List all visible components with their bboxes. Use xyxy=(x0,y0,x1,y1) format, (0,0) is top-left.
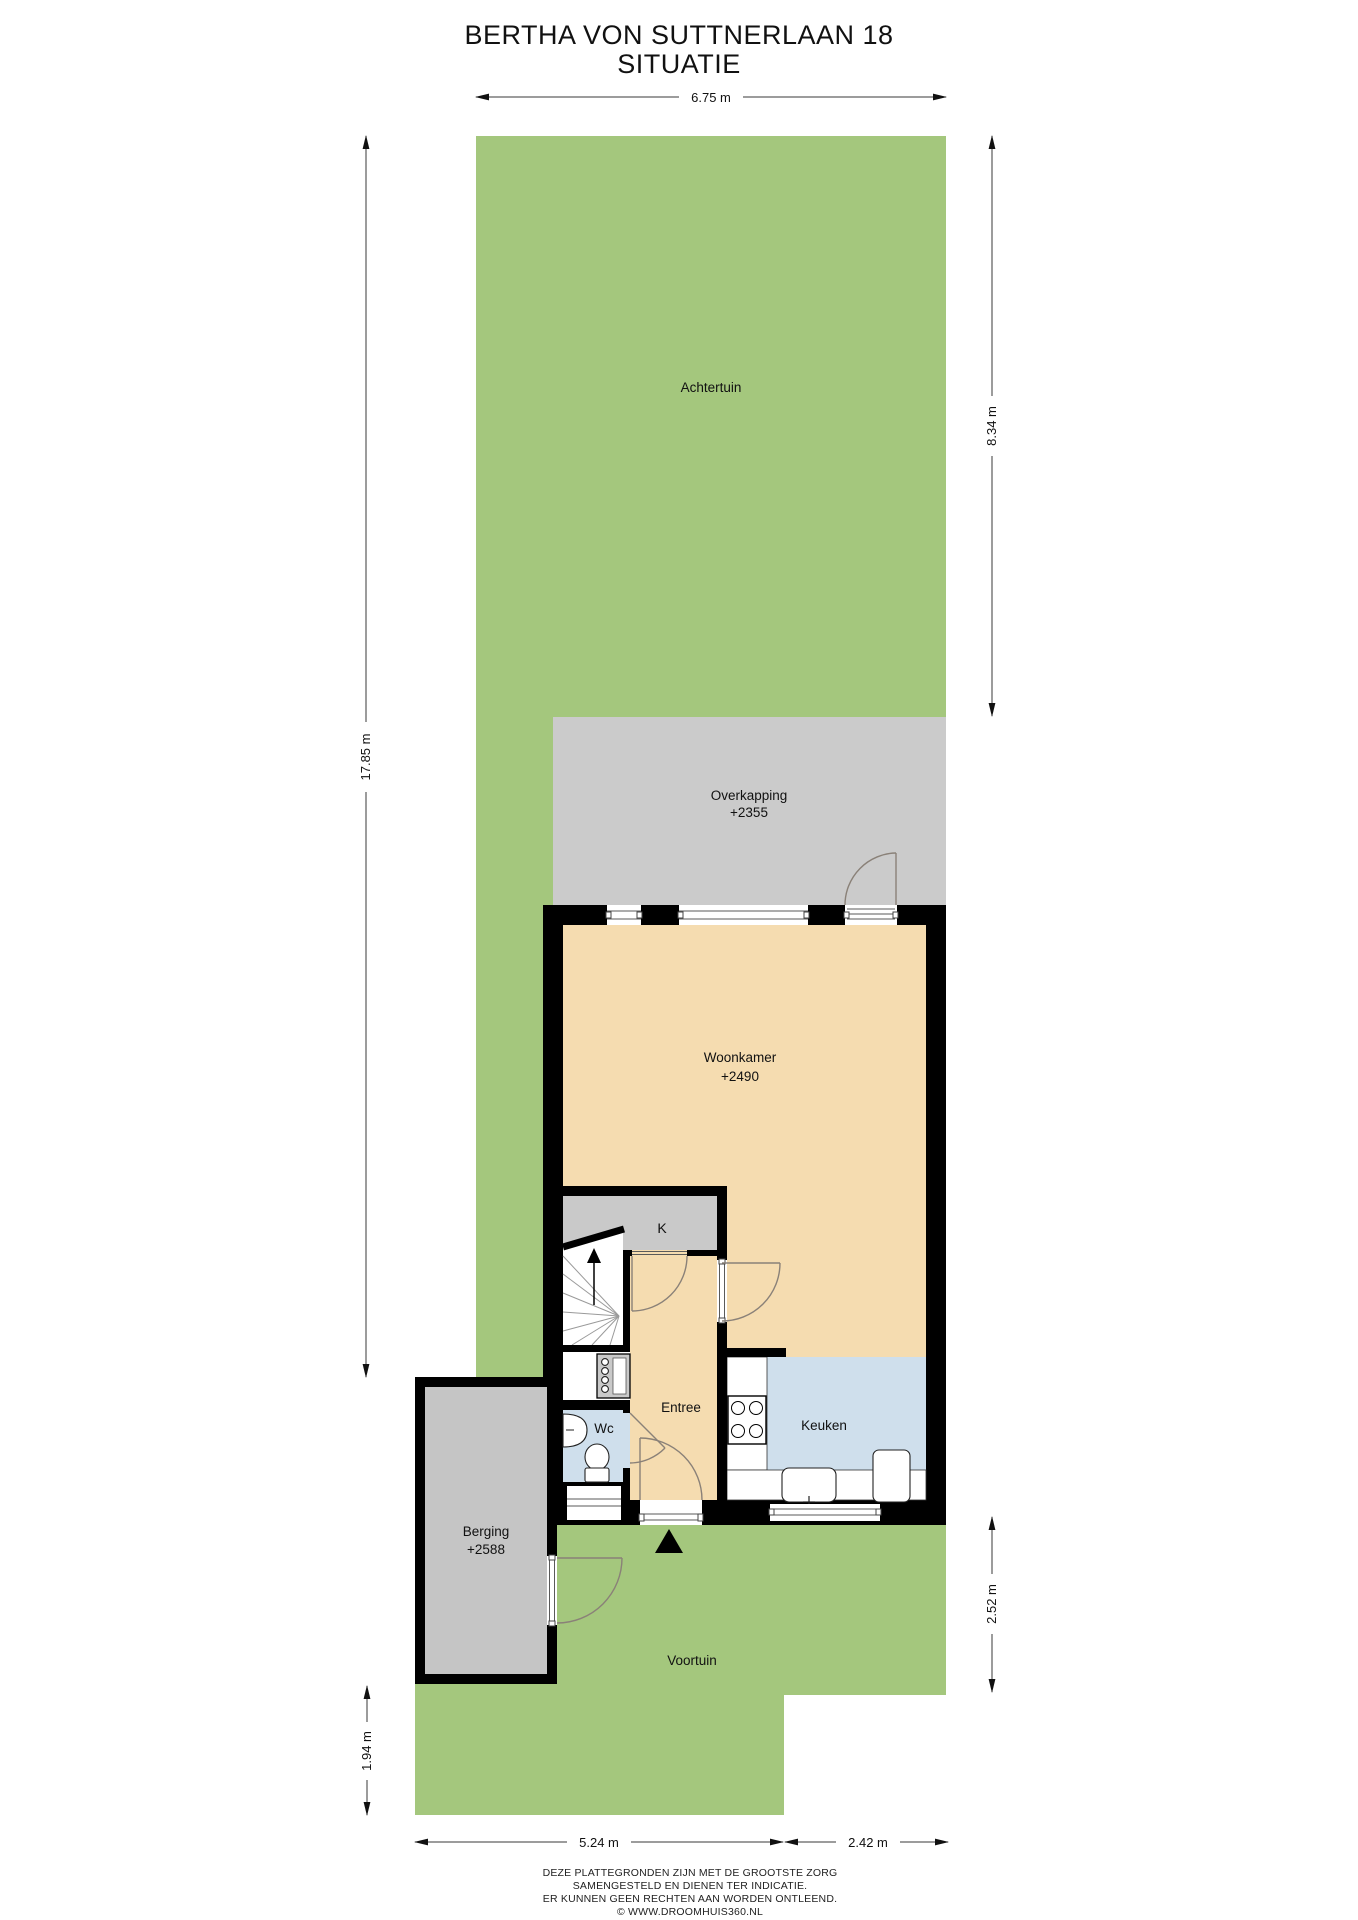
achtertuin-area xyxy=(476,136,946,717)
page-title: BERTHA VON SUTTNERLAAN 18 xyxy=(464,20,893,50)
dimension-bottom-width-left: 5.24 m xyxy=(415,1833,783,1850)
disclaimer-line-3: ER KUNNEN GEEN RECHTEN AAN WORDEN ONTLEE… xyxy=(543,1893,837,1905)
achtertuin-label: Achtertuin xyxy=(681,380,742,395)
dim-bottom-width-left-label: 5.24 m xyxy=(579,1835,619,1850)
dim-bottom-width-right-label: 2.42 m xyxy=(848,1835,888,1850)
dim-right-upper-label: 8.34 m xyxy=(984,406,999,446)
woonkamer-level: +2490 xyxy=(721,1069,759,1084)
dim-top-width-label: 6.75 m xyxy=(691,90,731,105)
kast-label: K xyxy=(657,1220,667,1236)
dim-left-height-label: 17.85 m xyxy=(358,734,373,781)
voortuin-label: Voortuin xyxy=(667,1653,717,1668)
house: Woonkamer +2490 K Entree xyxy=(543,853,946,1525)
garden-strip-left-lower xyxy=(476,905,543,1377)
page-subtitle: SITUATIE xyxy=(617,49,741,79)
disclaimer-line-2: SAMENGESTELD EN DIENEN TER INDICATIE. xyxy=(573,1880,808,1892)
voortuin-area-left xyxy=(415,1684,784,1815)
overkapping-level: +2355 xyxy=(730,805,768,820)
window-back-small xyxy=(606,905,642,925)
disclaimer-line-1: DEZE PLATTEGRONDEN ZIJN MET DE GROOTSTE … xyxy=(543,1867,838,1879)
wc-door-opening xyxy=(623,1413,630,1468)
kitchen-hob xyxy=(728,1396,766,1444)
window-keuken-front xyxy=(769,1504,881,1521)
window-back-large xyxy=(678,905,809,925)
kitchen-appliance xyxy=(873,1450,910,1502)
disclaimer: DEZE PLATTEGRONDEN ZIJN MET DE GROOTSTE … xyxy=(543,1867,838,1918)
entree-label: Entree xyxy=(661,1400,701,1415)
berging-level: +2588 xyxy=(467,1542,505,1557)
staircase xyxy=(563,1226,624,1345)
dimension-left-height: 17.85 m xyxy=(357,136,375,1377)
dimension-right-upper: 8.34 m xyxy=(983,136,1001,716)
wc-toilet xyxy=(585,1444,609,1482)
title-block: BERTHA VON SUTTNERLAAN 18 SITUATIE xyxy=(464,20,893,79)
overkapping-area: Overkapping +2355 xyxy=(553,717,946,905)
window-wc-front xyxy=(567,1486,621,1520)
berging-label: Berging xyxy=(463,1524,510,1539)
woonkamer-label: Woonkamer xyxy=(704,1050,777,1065)
dimension-top-width: 6.75 m xyxy=(476,88,946,105)
dim-bottom-left-label: 1.94 m xyxy=(359,1731,374,1771)
kitchen-sink xyxy=(782,1468,836,1506)
meter-cupboard xyxy=(597,1354,630,1398)
dimension-bottom-left-height: 1.94 m xyxy=(358,1686,376,1815)
garden-strip-left-upper xyxy=(476,717,553,905)
keuken-label: Keuken xyxy=(801,1418,847,1433)
dimension-bottom-width-right: 2.42 m xyxy=(785,1833,948,1850)
floorplan-canvas: BERTHA VON SUTTNERLAAN 18 SITUATIE Achte… xyxy=(0,0,1358,1920)
overkapping-label: Overkapping xyxy=(711,788,788,803)
dim-right-lower-label: 2.52 m xyxy=(984,1584,999,1624)
voortuin-area-right xyxy=(557,1525,946,1695)
dimension-right-lower: 2.52 m xyxy=(983,1517,1001,1692)
disclaimer-line-4: © WWW.DROOMHUIS360.NL xyxy=(617,1906,763,1918)
wc-label: Wc xyxy=(594,1421,614,1436)
